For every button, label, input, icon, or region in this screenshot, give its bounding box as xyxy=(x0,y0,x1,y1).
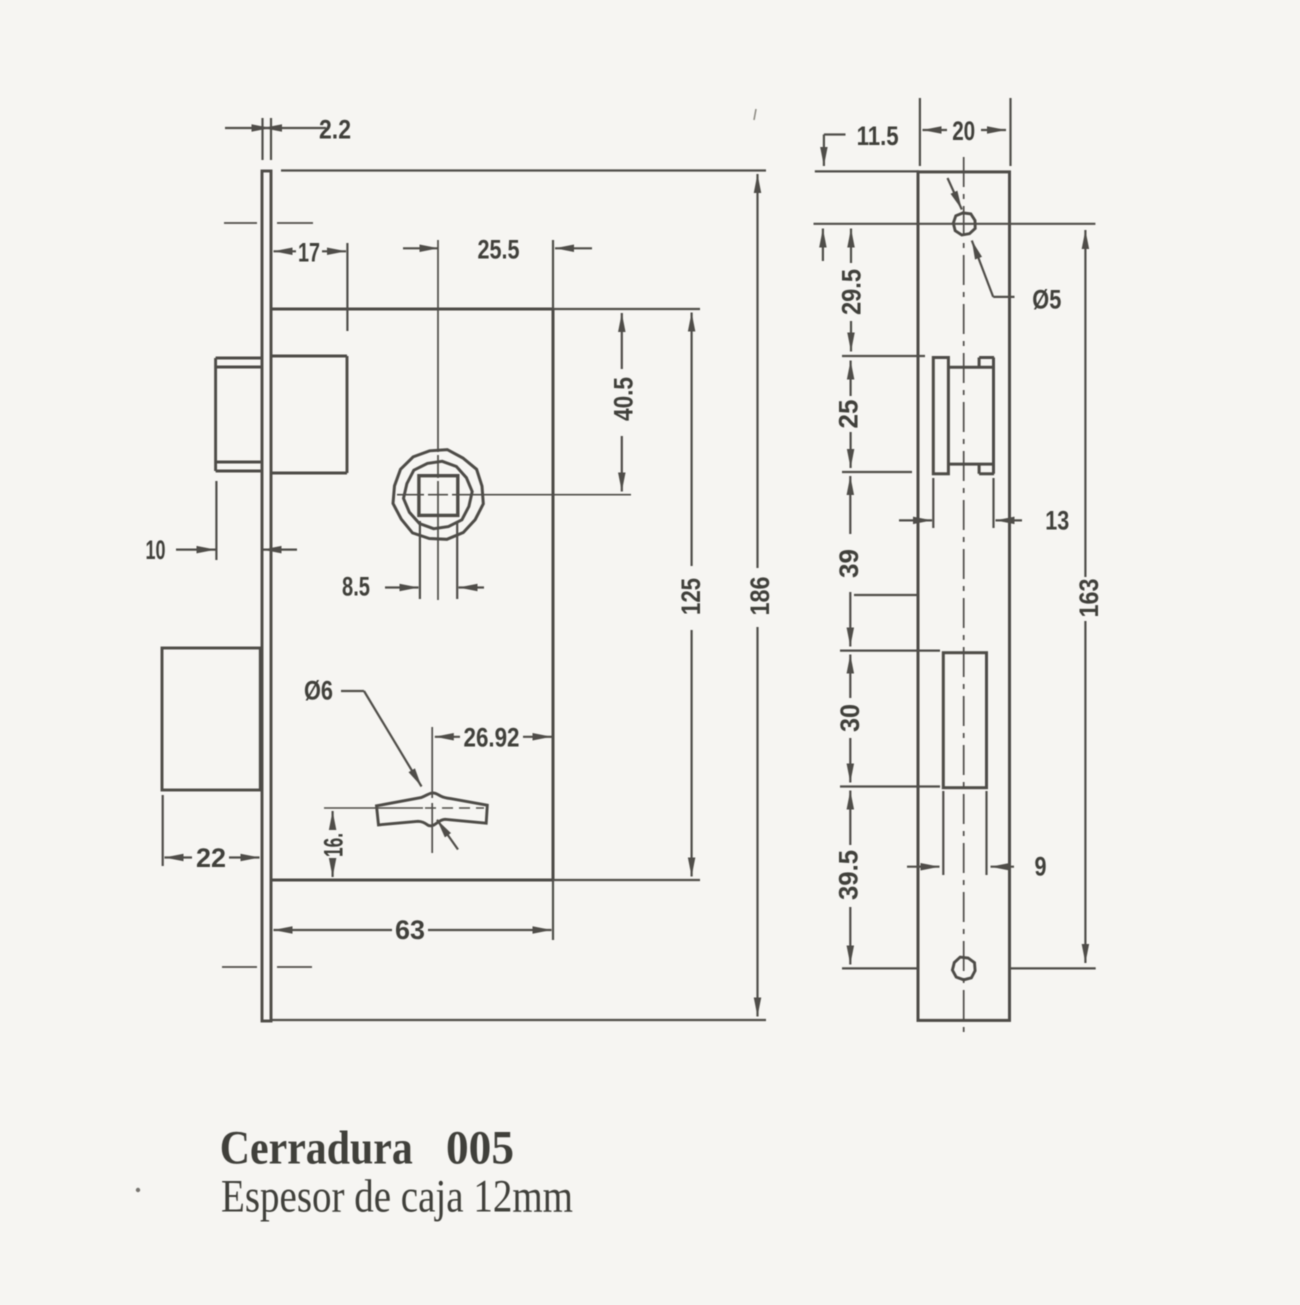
svg-text:29.5: 29.5 xyxy=(837,269,867,315)
svg-text:Cerradura: Cerradura xyxy=(220,1122,413,1175)
svg-text:63: 63 xyxy=(395,915,425,945)
svg-text:20: 20 xyxy=(952,116,975,146)
svg-text:22: 22 xyxy=(196,843,226,873)
svg-text:26.92: 26.92 xyxy=(464,722,520,752)
svg-text:2.2: 2.2 xyxy=(319,115,351,145)
svg-text:25: 25 xyxy=(834,400,864,429)
svg-text:30: 30 xyxy=(835,704,865,732)
svg-text:13: 13 xyxy=(1045,505,1069,535)
svg-text:39: 39 xyxy=(834,549,864,578)
svg-text:9: 9 xyxy=(1035,852,1047,882)
svg-text:Ø5: Ø5 xyxy=(1032,285,1061,315)
svg-text:125: 125 xyxy=(676,578,706,615)
svg-text:10: 10 xyxy=(146,535,166,565)
svg-text:40.5: 40.5 xyxy=(608,377,638,421)
svg-text:163: 163 xyxy=(1074,579,1104,618)
svg-text:25.5: 25.5 xyxy=(478,234,520,264)
svg-text:186: 186 xyxy=(745,577,775,616)
svg-text:16.: 16. xyxy=(319,833,349,857)
svg-text:005: 005 xyxy=(446,1122,514,1175)
svg-text:17: 17 xyxy=(298,238,320,268)
svg-text:11.5: 11.5 xyxy=(857,121,899,151)
svg-text:Ø6: Ø6 xyxy=(304,676,333,706)
svg-text:Espesor de caja 12mm: Espesor de caja 12mm xyxy=(221,1171,573,1223)
svg-text:39.5: 39.5 xyxy=(834,850,864,900)
svg-text:8.5: 8.5 xyxy=(342,572,370,602)
